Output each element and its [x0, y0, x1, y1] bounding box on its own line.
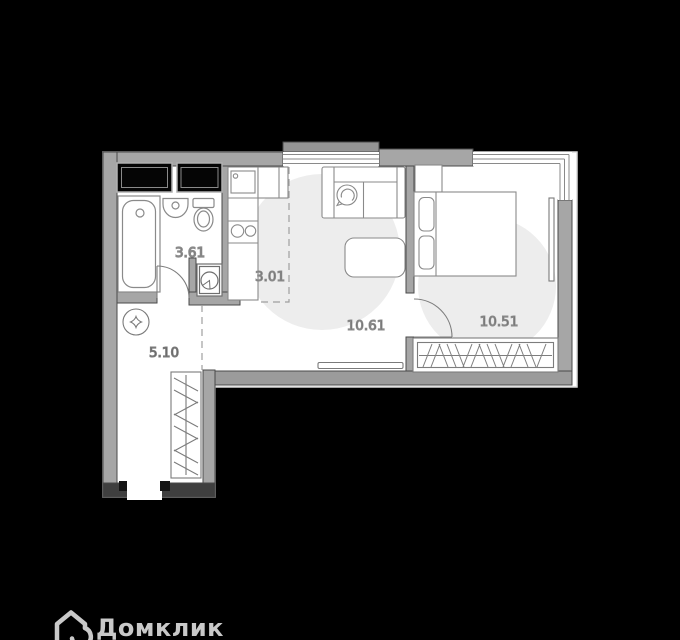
- wall-bathroom-bottom: [117, 292, 157, 303]
- floor-plan: 3.61 3.01: [0, 0, 680, 640]
- living-radiator: [318, 363, 403, 369]
- entrance-jamb-left: [119, 481, 127, 491]
- pillow: [419, 236, 434, 269]
- hall-wardrobe: [171, 372, 201, 478]
- entrance-opening: [127, 482, 162, 500]
- coffee-table: [345, 238, 405, 277]
- wall-top-pier: [379, 149, 473, 166]
- kitchen-sink: [231, 171, 255, 193]
- bedroom-wardrobe: [413, 338, 558, 372]
- bed: [414, 192, 516, 276]
- living-area-label: 10.61: [347, 318, 386, 334]
- wall-bottom-main: [203, 371, 572, 385]
- wall-right: [558, 200, 572, 385]
- hallway-area-label: 5.10: [149, 345, 179, 361]
- wall-living-bedroom: [406, 166, 414, 293]
- fan-symbol-icon: [123, 309, 149, 335]
- sofa: [322, 167, 405, 218]
- wall-washer-nook: [189, 258, 196, 295]
- bathtub: [118, 196, 160, 292]
- entrance-jamb-right: [160, 481, 170, 491]
- kitchen-area-label: 3.01: [255, 269, 285, 285]
- wall-left: [103, 152, 117, 497]
- window-lintel-slab: [283, 142, 379, 152]
- vent-shaft-icon: [117, 163, 222, 192]
- nightstand: [415, 165, 442, 192]
- wall-hall-right: [203, 370, 215, 497]
- pillow: [419, 198, 434, 232]
- window-living: [283, 152, 379, 166]
- logo-text: Домклик: [96, 614, 224, 640]
- bathroom-area-label: 3.61: [175, 245, 205, 261]
- bedroom-area-label: 10.51: [480, 314, 519, 330]
- toilet: [193, 199, 214, 232]
- bedroom-radiator: [549, 198, 554, 281]
- fridge: [258, 167, 288, 198]
- washing-machine: [197, 264, 222, 296]
